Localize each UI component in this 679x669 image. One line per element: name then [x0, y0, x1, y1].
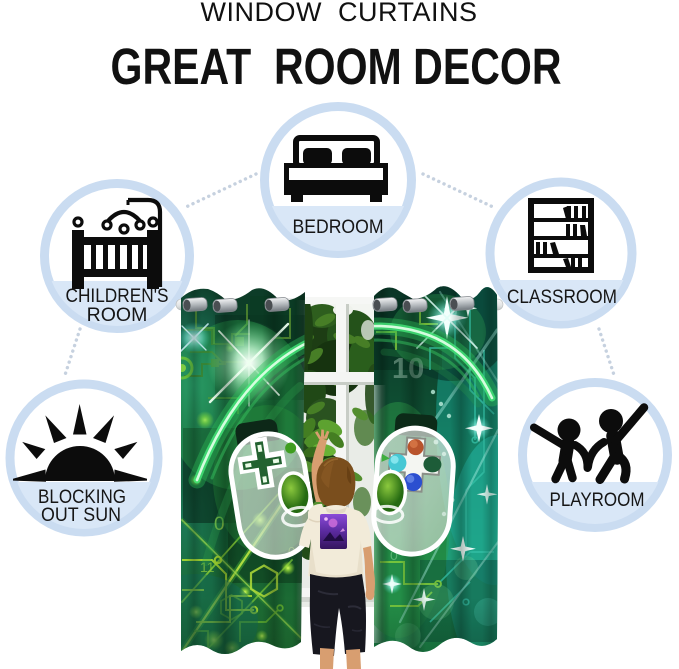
svg-text:ROOM: ROOM	[87, 304, 148, 326]
svg-text:PLAYROOM: PLAYROOM	[550, 489, 645, 511]
svg-text:BEDROOM: BEDROOM	[293, 216, 384, 238]
svg-text:WINDOW CURTAINS: WINDOW CURTAINS	[201, 0, 478, 27]
svg-text:GREAT ROOM DECOR: GREAT ROOM DECOR	[111, 38, 562, 95]
svg-text:CLASSROOM: CLASSROOM	[507, 286, 617, 308]
svg-text:OUT SUN: OUT SUN	[41, 504, 121, 526]
